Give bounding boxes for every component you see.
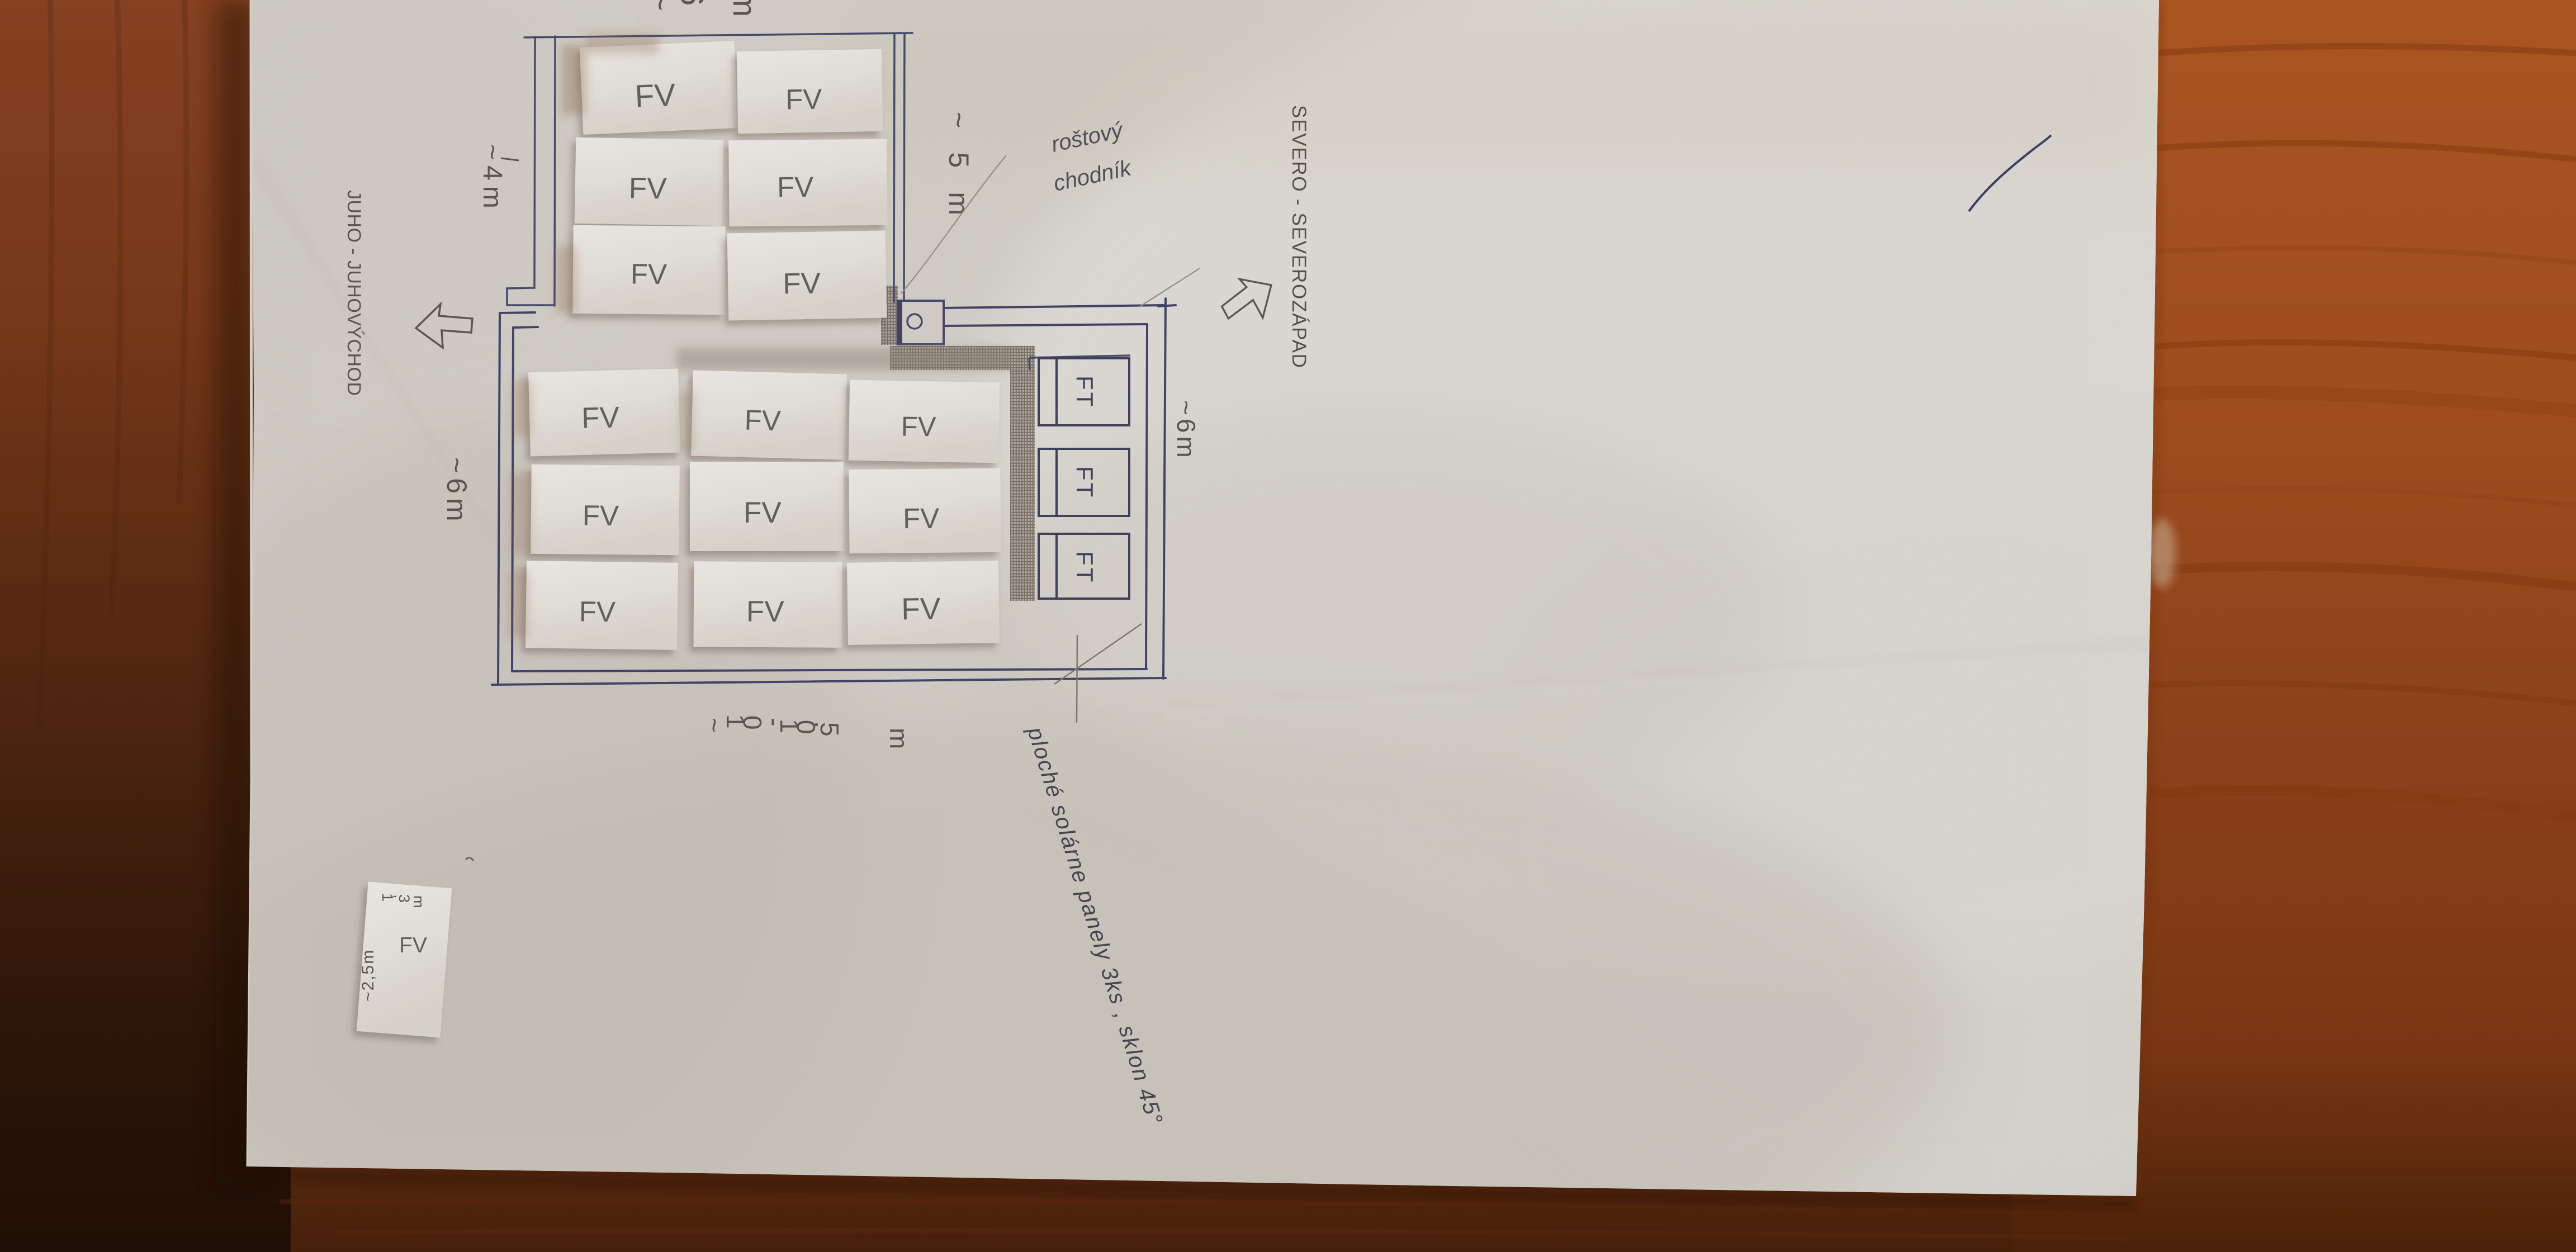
svg-text:FT: FT xyxy=(1072,466,1098,499)
svg-text:~: ~ xyxy=(642,0,679,11)
svg-text:FV: FV xyxy=(579,595,615,628)
svg-text:FV: FV xyxy=(583,500,619,532)
svg-text:FV: FV xyxy=(744,404,782,437)
svg-text:FV: FV xyxy=(631,258,667,291)
svg-text:FT: FT xyxy=(1072,551,1098,584)
svg-text:~6m: ~6m xyxy=(1172,400,1201,461)
svg-text:FV: FV xyxy=(783,267,821,301)
svg-text:5: 5 xyxy=(815,722,844,737)
svg-text:JUHO - JUHOVÝCHOD: JUHO - JUHOVÝCHOD xyxy=(343,190,364,396)
svg-text:~6m: ~6m xyxy=(441,457,472,526)
svg-text:3: 3 xyxy=(396,894,413,903)
svg-text:SEVERO - SEVEROZÁPAD: SEVERO - SEVEROZÁPAD xyxy=(1288,105,1310,368)
svg-text:m: m xyxy=(884,728,913,749)
svg-text:FV: FV xyxy=(901,411,936,442)
svg-text:~5m: ~5m xyxy=(943,112,974,215)
svg-text:m: m xyxy=(410,895,427,908)
svg-text:FV: FV xyxy=(399,933,427,957)
svg-text:~2,5m: ~2,5m xyxy=(359,949,377,1002)
svg-text:FV: FV xyxy=(634,77,676,115)
svg-text:FV: FV xyxy=(581,401,620,435)
svg-text:m: m xyxy=(726,0,763,17)
svg-text:FV: FV xyxy=(777,171,814,203)
svg-text:FT: FT xyxy=(1072,376,1098,409)
svg-text:6: 6 xyxy=(674,0,710,6)
svg-text:FV: FV xyxy=(746,595,785,628)
svg-text:FV: FV xyxy=(628,172,667,205)
svg-text:FV: FV xyxy=(744,496,782,529)
svg-text:FV: FV xyxy=(901,591,941,627)
svg-text:FV: FV xyxy=(785,83,822,116)
svg-text:FV: FV xyxy=(903,502,940,535)
svg-text:~4m: ~4m xyxy=(477,144,507,214)
